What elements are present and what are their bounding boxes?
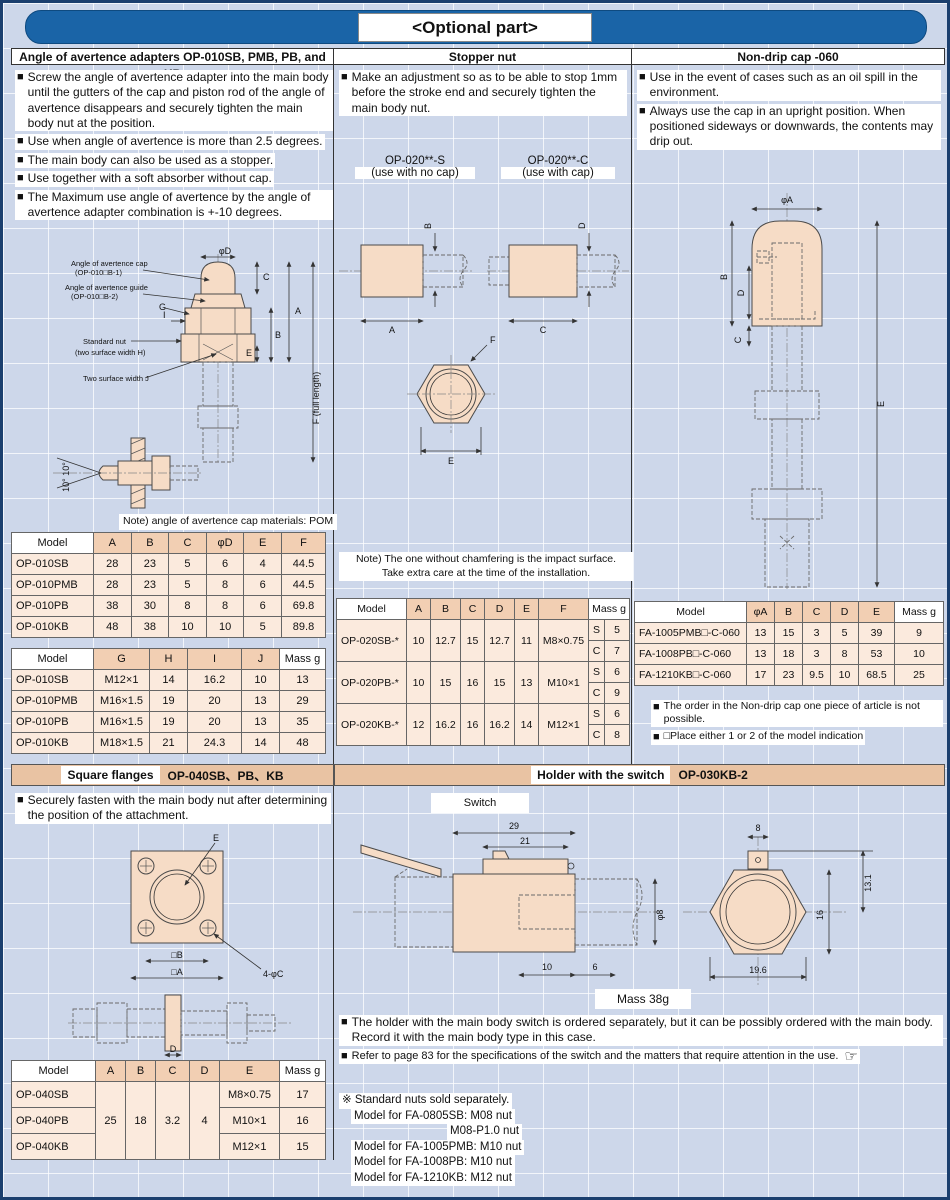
footnote-line: Model for FA-1210KB: M12 nut bbox=[351, 1171, 515, 1187]
bullet-item: ■Securely fasten with the main body nut … bbox=[15, 793, 331, 824]
switch-label: Switch bbox=[431, 793, 529, 813]
dim-C: C bbox=[540, 325, 547, 335]
col-header: A bbox=[94, 533, 132, 554]
bullet-square-icon: ■ bbox=[17, 71, 24, 85]
table-row: OP-010SBM12×11416.21013 bbox=[12, 670, 326, 691]
bullet-item: ■Always use the cap in an upright positi… bbox=[637, 104, 941, 150]
note-line: Take extra care at the time of the insta… bbox=[343, 567, 629, 581]
left-diagram-note: Note) angle of avertence cap materials: … bbox=[119, 514, 337, 530]
col-header: B bbox=[431, 599, 461, 620]
non-drip-bullets: ■Use in the event of cases such as an oi… bbox=[637, 70, 941, 153]
table-row: OP-010SB282356444.5 bbox=[12, 554, 326, 575]
bullet-square-icon: ■ bbox=[17, 794, 24, 808]
square-flanges-band: Square flanges OP-040SB、PB、KB bbox=[11, 764, 334, 786]
bullet-square-icon: ■ bbox=[639, 71, 646, 85]
variant-sub: (use with cap) bbox=[501, 167, 615, 179]
bullet-square-icon: ■ bbox=[17, 191, 24, 205]
table-row: OP-020SB-* 10 12.7 15 12.7 11 M8×0.75 S … bbox=[337, 620, 630, 641]
col-header: E bbox=[220, 1061, 280, 1082]
dim-16: 16 bbox=[815, 910, 825, 920]
bullet-square-icon: ■ bbox=[17, 154, 24, 168]
col-header: C bbox=[461, 599, 485, 620]
bullet-text: The holder with the main body switch is … bbox=[352, 1015, 941, 1046]
bullet-item: ■The holder with the main body switch is… bbox=[339, 1015, 943, 1046]
col-header: G bbox=[94, 649, 150, 670]
col-header: F bbox=[282, 533, 326, 554]
dim-C: C bbox=[263, 272, 270, 282]
bullet-item: ■The order in the Non-drip cap one piece… bbox=[651, 700, 943, 727]
bullet-text: The Maximum use angle of avertence by th… bbox=[28, 190, 331, 221]
col-header: Model bbox=[635, 602, 747, 623]
col-header: I bbox=[188, 649, 242, 670]
dim-8: 8 bbox=[755, 823, 760, 833]
non-drip-table: Model φA B C D E Mass g FA-1005PMB□-C-06… bbox=[634, 601, 944, 686]
angle-adapter-bullets: ■Screw the angle of avertence adapter in… bbox=[15, 70, 333, 223]
bullet-text: Use together with a soft absorber withou… bbox=[28, 171, 272, 186]
dim-21: 21 bbox=[520, 836, 530, 846]
bullet-square-icon: ■ bbox=[653, 701, 660, 715]
square-flanges-models: OP-040SB、PB、KB bbox=[168, 767, 284, 784]
non-drip-notes: ■The order in the Non-drip cap one piece… bbox=[651, 700, 943, 748]
standard-nut-footnotes: ※ Standard nuts sold separately. Model f… bbox=[339, 1093, 679, 1186]
col-header: B bbox=[126, 1061, 156, 1082]
col-header: D bbox=[831, 602, 859, 623]
holder-band-title: Holder with the switch bbox=[531, 766, 670, 784]
col-header: φD bbox=[206, 533, 244, 554]
dim-D: D bbox=[577, 222, 587, 229]
page-title: <Optional part> bbox=[358, 13, 592, 42]
bullet-square-icon: ■ bbox=[341, 1050, 348, 1064]
holder-band: Holder with the switch OP-030KB-2 bbox=[334, 764, 945, 786]
col-header: B bbox=[775, 602, 803, 623]
dim-E: E bbox=[876, 401, 886, 407]
col-header: Mass g bbox=[280, 649, 326, 670]
callout-cap-model: (OP-010□B-1) bbox=[75, 268, 123, 277]
bullet-text: The main body can also be used as a stop… bbox=[28, 153, 274, 168]
col-header: Model bbox=[337, 599, 407, 620]
table-row: FA-1210KB□-C-06017239.51068.525 bbox=[635, 665, 944, 686]
dim-B: B bbox=[275, 330, 281, 340]
variant-sub: (use with no cap) bbox=[355, 167, 475, 179]
table-row: OP-020KB-* 12 16.2 16 16.2 14 M12×1 S 6 bbox=[337, 704, 630, 725]
callout-guide-model: (OP-010□B-2) bbox=[71, 292, 119, 301]
catalog-page: <Optional part> Angle of avertence adapt… bbox=[0, 0, 950, 1200]
table-row: OP-010PMBM16×1.519201329 bbox=[12, 691, 326, 712]
col-header: Mass g bbox=[895, 602, 944, 623]
dim-6: 6 bbox=[592, 962, 597, 972]
col-header: Mass g bbox=[280, 1061, 326, 1082]
col-header: Model bbox=[12, 649, 94, 670]
col-header: B bbox=[131, 533, 169, 554]
divider-middle-right bbox=[631, 48, 632, 765]
bullet-square-icon: ■ bbox=[341, 1016, 348, 1030]
angle-adapter-dim-table: Model A B C φD E F OP-010SB282356444.5 O… bbox=[11, 532, 326, 638]
col-header: H bbox=[150, 649, 188, 670]
col-header: Mass g bbox=[589, 599, 630, 620]
footnote-line: Model for FA-1005PMB: M10 nut bbox=[351, 1140, 524, 1156]
variant-no-cap: OP-020**-S (use with no cap) bbox=[355, 155, 475, 179]
bullet-item: ■Screw the angle of avertence adapter in… bbox=[15, 70, 333, 131]
col-header: φA bbox=[747, 602, 775, 623]
stopper-bullets: ■Make an adjustment so as to be able to … bbox=[339, 70, 627, 119]
angle-label: 10° 10° bbox=[61, 462, 71, 492]
stopper-nut-diagram: B A D C F E bbox=[339, 203, 629, 493]
dim-10: 10 bbox=[542, 962, 552, 972]
dim-A: A bbox=[389, 325, 395, 335]
dim-D: D bbox=[170, 1044, 177, 1054]
bullet-text: The order in the Non-drip cap one piece … bbox=[664, 700, 941, 727]
bullet-item: ■Refer to page 83 for the specifications… bbox=[339, 1049, 860, 1064]
dim-phiA: φA bbox=[781, 195, 793, 205]
bullet-item: ■The main body can also be used as a sto… bbox=[15, 153, 275, 168]
bullet-square-icon: ■ bbox=[639, 105, 646, 119]
switch-front-diagram: 8 13.1 16 19.6 bbox=[663, 817, 943, 992]
table-row: OP-010KB48381010589.8 bbox=[12, 617, 326, 638]
col-header: D bbox=[485, 599, 515, 620]
bullet-text: Screw the angle of avertence adapter int… bbox=[28, 70, 331, 131]
dim-B: B bbox=[719, 274, 729, 280]
footnote-line: Model for FA-0805SB: M08 nut bbox=[351, 1109, 515, 1125]
col-header: Model bbox=[12, 533, 94, 554]
col-header: C bbox=[803, 602, 831, 623]
section-title-angle-adapters: Angle of avertence adapters OP-010SB, PM… bbox=[11, 48, 334, 65]
col-header: C bbox=[169, 533, 207, 554]
variant-model: OP-020**-C bbox=[501, 155, 615, 167]
dim-F: F (full length) bbox=[311, 372, 321, 425]
bullet-item: ■Make an adjustment so as to be able to … bbox=[339, 70, 627, 116]
col-header: A bbox=[407, 599, 431, 620]
square-flange-diagram: E □B □A 4-φC D bbox=[13, 833, 331, 1055]
col-header: C bbox=[156, 1061, 190, 1082]
dim-E: E bbox=[246, 348, 252, 358]
section-title-stopper-nut: Stopper nut bbox=[333, 48, 632, 65]
col-header: Model bbox=[12, 1061, 96, 1082]
bullet-square-icon: ■ bbox=[17, 172, 24, 186]
col-header: A bbox=[96, 1061, 126, 1082]
table-row: OP-010KBM18×1.52124.31448 bbox=[12, 733, 326, 754]
footnote-line: M08-P1.0 nut bbox=[447, 1124, 522, 1140]
switch-holder-diagram: 29 21 φ8 10 6 bbox=[343, 817, 673, 992]
non-drip-cap-diagram: φA B D C E bbox=[637, 191, 943, 591]
switch-mass: Mass 38g bbox=[595, 989, 691, 1009]
variant-with-cap: OP-020**-C (use with cap) bbox=[501, 155, 615, 179]
dim-A: □A bbox=[171, 967, 182, 977]
table-row: OP-020PB-* 10 15 16 15 13 M10×1 S 6 bbox=[337, 662, 630, 683]
bullet-text: Refer to page 83 for the specifications … bbox=[352, 1049, 839, 1063]
table-row: FA-1005PMB□-C-060131535399 bbox=[635, 623, 944, 644]
table-row: FA-1008PB□-C-0601318385310 bbox=[635, 644, 944, 665]
dim-E: E bbox=[213, 833, 219, 843]
callout-guide: Angle of avertence guide bbox=[65, 283, 148, 292]
divider-left-middle bbox=[333, 48, 334, 1160]
col-header: E bbox=[859, 602, 895, 623]
bullet-item: ■□Place either 1 or 2 of the model indic… bbox=[651, 730, 865, 745]
dim-13-1: 13.1 bbox=[863, 874, 873, 892]
holder-bullets: ■The holder with the main body switch is… bbox=[339, 1015, 943, 1067]
col-header: J bbox=[242, 649, 280, 670]
bullet-text: Securely fasten with the main body nut a… bbox=[28, 793, 329, 824]
bullet-text: Use in the event of cases such as an oil… bbox=[650, 70, 939, 101]
section-title-non-drip-cap: Non-drip cap -060 bbox=[631, 48, 945, 65]
col-header: F bbox=[539, 599, 589, 620]
stopper-table: Model A B C D E F Mass g OP-020SB-* 10 1… bbox=[336, 598, 630, 746]
dim-phiD: φD bbox=[219, 246, 232, 256]
col-header: D bbox=[190, 1061, 220, 1082]
flange-table: Model A B C D E Mass g OP-040SB 25 18 3.… bbox=[11, 1060, 326, 1160]
bullet-square-icon: ■ bbox=[341, 71, 348, 85]
flange-bullets: ■Securely fasten with the main body nut … bbox=[15, 793, 331, 827]
stopper-note: Note) The one without chamfering is the … bbox=[339, 552, 633, 581]
holder-band-model: OP-030KB-2 bbox=[678, 768, 747, 782]
dim-19-6: 19.6 bbox=[749, 965, 767, 975]
table-row: OP-010PB383088669.8 bbox=[12, 596, 326, 617]
dim-F: F bbox=[490, 335, 496, 345]
dim-D: D bbox=[736, 289, 746, 296]
callout-G: G bbox=[159, 302, 166, 312]
bullet-square-icon: ■ bbox=[17, 135, 24, 149]
callout-nut-width: (two surface width H) bbox=[75, 348, 146, 357]
angle-adapter-thread-table: Model G H I J Mass g OP-010SBM12×11416.2… bbox=[11, 648, 326, 754]
dim-29: 29 bbox=[509, 821, 519, 831]
dim-E: E bbox=[448, 456, 454, 466]
dim-B: □B bbox=[171, 950, 182, 960]
col-header: E bbox=[244, 533, 282, 554]
dim-4phiC: 4-φC bbox=[263, 969, 284, 979]
callout-cap: Angle of avertence cap bbox=[71, 259, 148, 268]
bullet-text: Use when angle of avertence is more than… bbox=[28, 134, 323, 149]
variant-model: OP-020**-S bbox=[355, 155, 475, 167]
footnote-line: Model for FA-1008PB: M10 nut bbox=[351, 1155, 515, 1171]
bullet-text: □Place either 1 or 2 of the model indica… bbox=[664, 730, 864, 743]
dim-B: B bbox=[423, 223, 433, 229]
table-row: OP-040SB 25 18 3.2 4 M8×0.75 17 bbox=[12, 1082, 326, 1108]
bullet-item: ■Use when angle of avertence is more tha… bbox=[15, 134, 325, 149]
angle-adapter-diagram: φD C B E A F (full length) I Angle of av… bbox=[13, 248, 331, 512]
bullet-item: ■Use together with a soft absorber witho… bbox=[15, 171, 274, 186]
pointing-hand-icon: ☞ bbox=[844, 1049, 857, 1064]
bullet-item: ■The Maximum use angle of avertence by t… bbox=[15, 190, 333, 221]
dim-C: C bbox=[733, 336, 743, 343]
bullet-square-icon: ■ bbox=[653, 731, 660, 745]
footnote-line: ※ Standard nuts sold separately. bbox=[339, 1093, 512, 1109]
square-flanges-title: Square flanges bbox=[61, 766, 159, 784]
callout-two-surface-J: Two surface width J bbox=[83, 374, 149, 383]
dim-A: A bbox=[295, 306, 301, 316]
note-line: Note) The one without chamfering is the … bbox=[343, 553, 629, 567]
col-header: E bbox=[515, 599, 539, 620]
bullet-text: Always use the cap in an upright positio… bbox=[650, 104, 939, 150]
table-row: OP-010PBM16×1.519201335 bbox=[12, 712, 326, 733]
table-row: OP-010PMB282358644.5 bbox=[12, 575, 326, 596]
callout-standard-nut: Standard nut bbox=[83, 337, 127, 346]
bullet-item: ■Use in the event of cases such as an oi… bbox=[637, 70, 941, 101]
bullet-text: Make an adjustment so as to be able to s… bbox=[352, 70, 625, 116]
